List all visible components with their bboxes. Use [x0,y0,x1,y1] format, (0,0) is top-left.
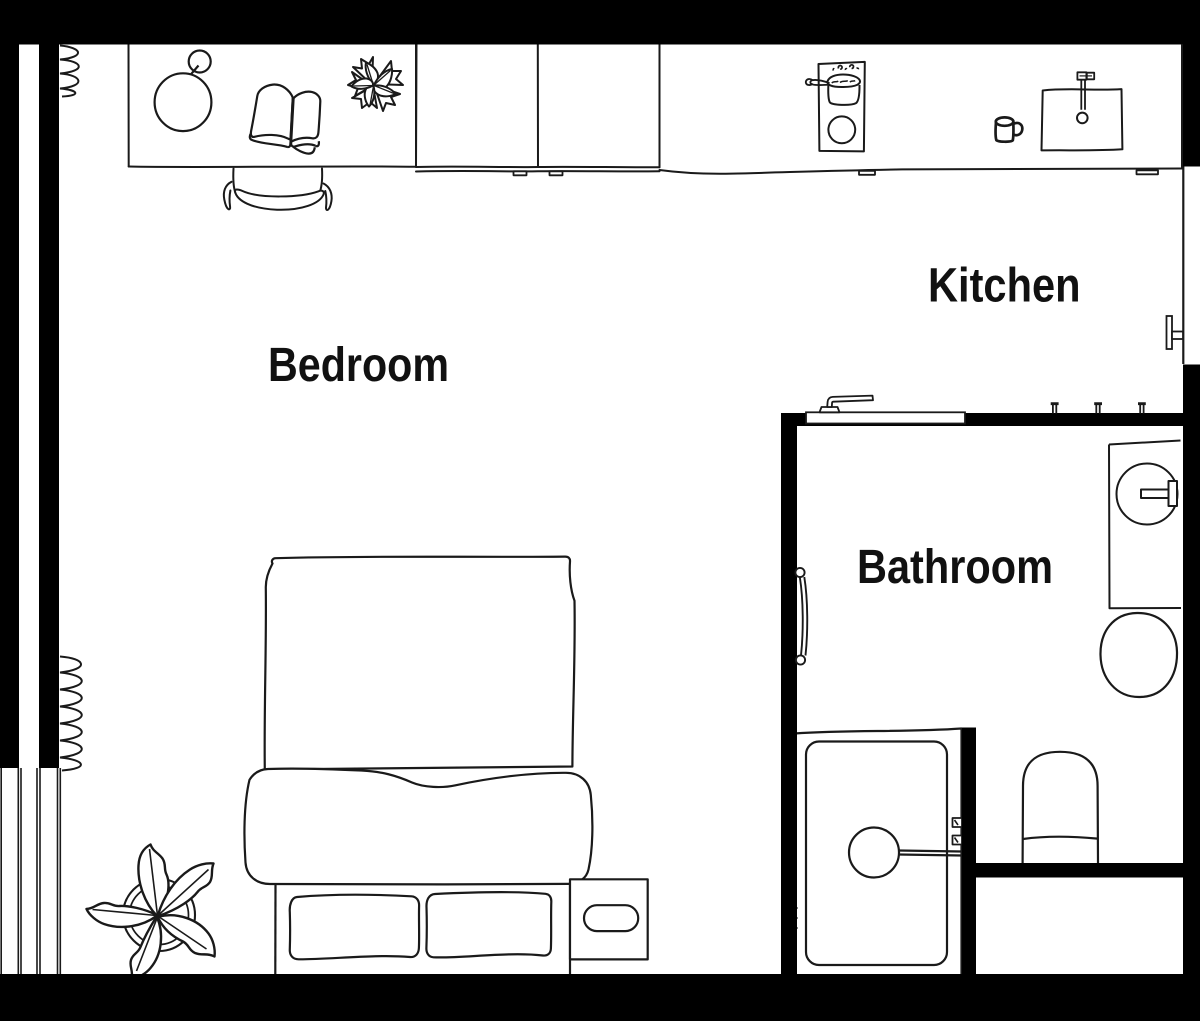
svg-text:Bathroom: Bathroom [857,541,1053,594]
svg-text:Bedroom: Bedroom [268,339,449,392]
svg-text:Kitchen: Kitchen [928,260,1081,313]
